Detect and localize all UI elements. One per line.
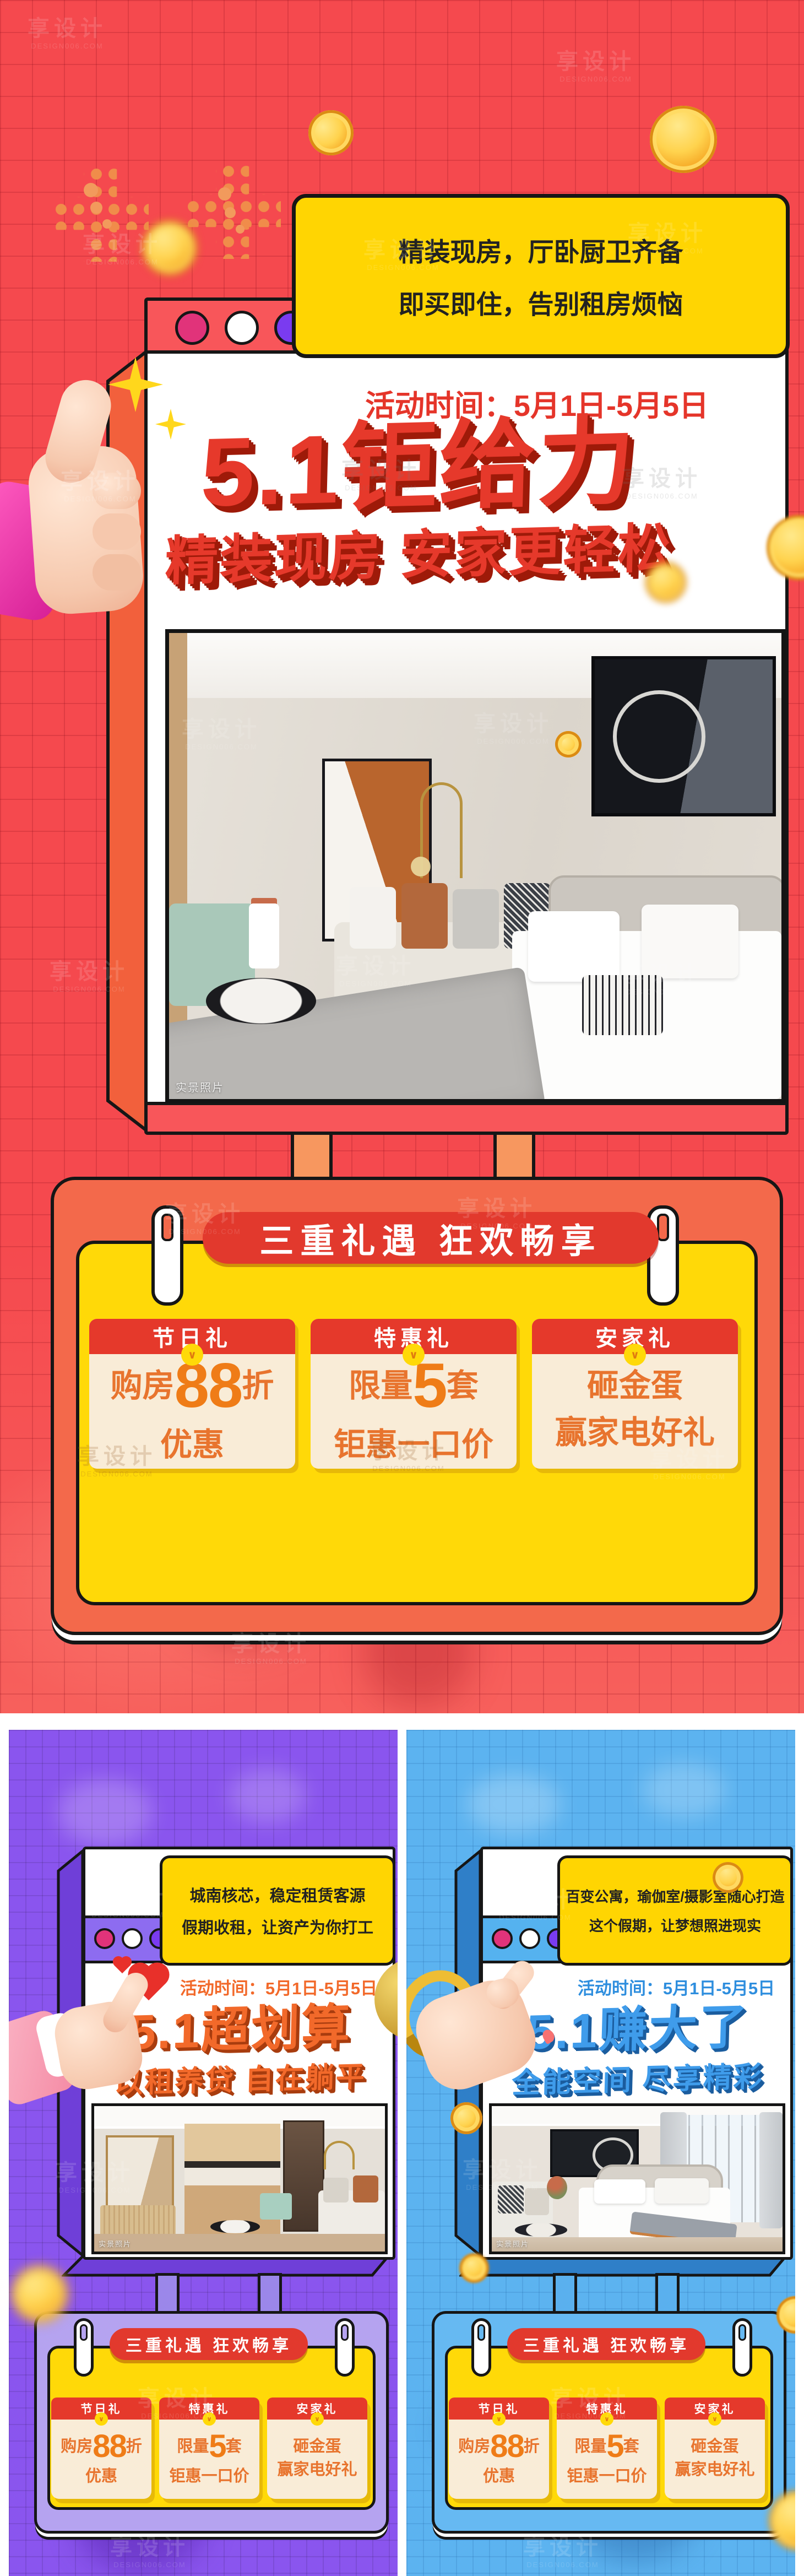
bubble-line-2: 假期收租，让资产为你打工 bbox=[182, 1915, 373, 1938]
ring-hole bbox=[738, 2324, 746, 2341]
speech-bubble: 城南核芯，稳定租赁客源 假期收租，让资产为你打工 bbox=[160, 1855, 395, 1966]
chevron-down-icon: ∨ bbox=[708, 2412, 721, 2426]
chevron-down-icon: ∨ bbox=[600, 2412, 613, 2426]
photo-pillow bbox=[323, 2178, 349, 2202]
gift-text: 限量 bbox=[574, 2439, 606, 2455]
bubble-line-1: 精装现房，厅卧厨卫齐备 bbox=[399, 231, 683, 269]
photo-sofa bbox=[318, 2190, 385, 2240]
window-dot-pink bbox=[175, 311, 209, 345]
poster-purple: 城南核芯，稳定租赁客源 假期收租，让资产为你打工 活动时间：5月1日-5月5日 … bbox=[9, 1730, 398, 2576]
chevron-down-icon: ∨ bbox=[95, 2412, 108, 2426]
hand-fingers bbox=[93, 473, 141, 509]
bubble-line-2: 即买即住，告别租房烦恼 bbox=[399, 283, 683, 321]
event-time: 活动时间：5月1日-5月5日 bbox=[572, 1974, 781, 1999]
photo-flowers bbox=[547, 2176, 567, 2199]
window-footer bbox=[148, 1102, 785, 1132]
gold-coin-blurred bbox=[142, 220, 197, 275]
dot-decoration bbox=[102, 219, 112, 229]
bubble-line-1: 城南核芯，稳定租赁客源 bbox=[189, 1883, 365, 1906]
gift-text: 优惠 bbox=[160, 1419, 224, 1465]
photo-coffee-table bbox=[210, 2220, 260, 2233]
gift-text: 钜惠一口价 bbox=[567, 2463, 647, 2486]
gift-card-home: 安家礼 ∨ 砸金蛋 赢家电好礼 bbox=[532, 1319, 738, 1469]
light-blob bbox=[643, 1763, 726, 1818]
gift-card-special: 特惠礼 ∨ 限量5套 钜惠一口价 bbox=[159, 2398, 259, 2499]
ring-hole bbox=[80, 2324, 88, 2341]
gift-text: 赢家电好礼 bbox=[277, 2456, 357, 2480]
light-blob bbox=[229, 1768, 306, 1823]
dot-decoration bbox=[236, 225, 245, 234]
binder-ring bbox=[335, 2318, 355, 2377]
apartment-photo: 实景照片 bbox=[91, 2103, 388, 2254]
offers-calendar: 三重礼遇 狂欢畅享 节日礼 ∨ 购房88折 优惠 特惠礼 ∨ 限量5套 钜惠一口… bbox=[34, 2311, 389, 2534]
photo-lamp-arc bbox=[324, 2141, 355, 2169]
dot-arrow-pattern bbox=[52, 165, 149, 262]
gift-text: 钜惠一口价 bbox=[334, 1419, 493, 1465]
ring-hole bbox=[161, 1214, 173, 1241]
gift-number: 5 bbox=[606, 2432, 623, 2461]
dot-decoration bbox=[218, 187, 231, 201]
gift-text: 优惠 bbox=[85, 2463, 117, 2486]
gold-coin bbox=[644, 100, 724, 180]
photo-line-art-pillow bbox=[582, 975, 663, 1036]
dot-decoration bbox=[90, 202, 102, 214]
poster-main: 活动时间：5月1日-5月5日 5.1钜给力 精装现房 安家更轻松 bbox=[0, 0, 804, 1713]
gift-number: 88 bbox=[490, 2432, 524, 2461]
window-dot-pink bbox=[492, 1928, 513, 1949]
gold-coin-blurred bbox=[645, 562, 686, 603]
gift-text: 赢家电好礼 bbox=[555, 1406, 715, 1453]
gift-text: 限量 bbox=[349, 1370, 412, 1402]
binder-ring bbox=[151, 1205, 183, 1306]
poster-collection: 活动时间：5月1日-5月5日 5.1钜给力 精装现房 安家更轻松 bbox=[0, 0, 804, 2576]
dot-decoration bbox=[84, 183, 98, 197]
photo-pillow bbox=[453, 889, 499, 949]
photo-pillow bbox=[401, 883, 448, 949]
gift-card-festival: 节日礼 ∨ 购房88折 优惠 bbox=[89, 1319, 295, 1469]
apartment-photo: 实景照片 bbox=[165, 629, 785, 1103]
binder-ring bbox=[471, 2318, 491, 2377]
gift-card-home: 安家礼 ∨ 砸金蛋 赢家电好礼 bbox=[267, 2398, 367, 2499]
gift-text: 折 bbox=[242, 1370, 274, 1402]
offers-calendar: 三重礼遇 狂欢畅享 节日礼 ∨ 购房88折 优惠 特惠礼 ∨ 限量5套 钜惠一口… bbox=[51, 1177, 783, 1635]
photo-pillow bbox=[350, 887, 396, 949]
photo-pillow bbox=[642, 905, 738, 978]
apartment-photo: 实景照片 bbox=[489, 2103, 785, 2254]
gift-card-festival: 节日礼 ∨ 购房88折 优惠 bbox=[449, 2398, 549, 2499]
poster-subtitle: 全能空间 尽享精彩 bbox=[483, 2062, 792, 2099]
gift-text: 赢家电好礼 bbox=[675, 2456, 754, 2480]
offers-calendar: 三重礼遇 狂欢畅享 节日礼 ∨ 购房88折 优惠 特惠礼 ∨ 限量5套 钜惠一口… bbox=[432, 2311, 786, 2534]
speech-bubble: 精装现房，厅卧厨卫齐备 即买即住，告别租房烦恼 bbox=[292, 194, 790, 358]
gold-coin-blurred bbox=[11, 2265, 68, 2323]
gift-text: 优惠 bbox=[483, 2463, 515, 2486]
window-dot-pink bbox=[94, 1928, 115, 1949]
photo-ring-light bbox=[613, 690, 706, 783]
photo-chair bbox=[260, 2193, 292, 2220]
photo-curtain bbox=[759, 2112, 783, 2228]
gift-text: 套 bbox=[623, 2439, 639, 2455]
calendar-title-pill: 三重礼遇 狂欢畅享 bbox=[203, 1212, 659, 1264]
bubble-line-1: 百变公寓，瑜伽室/摄影室随心打造 bbox=[566, 1886, 784, 1906]
gift-text: 购房 bbox=[111, 1370, 175, 1402]
gift-text: 限量 bbox=[177, 2439, 209, 2455]
gift-number: 88 bbox=[175, 1358, 242, 1415]
gift-number: 5 bbox=[209, 2432, 225, 2461]
gift-card-home: 安家礼 ∨ 砸金蛋 赢家电好礼 bbox=[665, 2398, 765, 2499]
poster-blue: 百变公寓，瑜伽室/摄影室随心打造 这个假期，让梦想照进现实 活动时间：5月1日-… bbox=[406, 1730, 795, 2576]
calendar-title-pill: 三重礼遇 狂欢畅享 bbox=[110, 2328, 308, 2360]
chevron-down-icon: ∨ bbox=[624, 1344, 646, 1366]
gift-text: 钜惠一口价 bbox=[169, 2463, 249, 2486]
chevron-down-icon: ∨ bbox=[492, 2412, 506, 2426]
gift-text: 套 bbox=[447, 1370, 479, 1402]
photo-vase bbox=[249, 903, 280, 968]
photo-pillow bbox=[353, 2175, 378, 2202]
gift-text: 购房 bbox=[458, 2439, 490, 2455]
photo-watermark-tag: 实景照片 bbox=[496, 2238, 529, 2249]
ring-hole bbox=[657, 1214, 669, 1241]
photo-coffee-table bbox=[515, 2223, 567, 2237]
chevron-down-icon: ∨ bbox=[311, 2412, 324, 2426]
photo-floor bbox=[94, 2234, 385, 2252]
window-dot-white bbox=[519, 1928, 540, 1949]
photo-pillow bbox=[594, 2179, 645, 2204]
chevron-down-icon: ∨ bbox=[181, 1344, 203, 1366]
gift-number: 88 bbox=[93, 2432, 126, 2461]
gift-card-festival: 节日礼 ∨ 购房88折 优惠 bbox=[51, 2398, 151, 2499]
gold-coin bbox=[302, 104, 360, 161]
gift-text: 折 bbox=[126, 2439, 142, 2455]
ring-hole bbox=[477, 2324, 485, 2341]
gift-text: 购房 bbox=[61, 2439, 93, 2455]
ring-hole bbox=[341, 2324, 349, 2341]
photo-watermark-tag: 实景照片 bbox=[176, 1079, 224, 1095]
photo-watermark-tag: 实景照片 bbox=[99, 2238, 132, 2249]
gift-card-special: 特惠礼 ∨ 限量5套 钜惠一口价 bbox=[557, 2398, 657, 2499]
bubble-line-2: 这个假期，让梦想照进现实 bbox=[589, 1915, 761, 1935]
gift-text: 折 bbox=[524, 2439, 540, 2455]
gift-text: 砸金蛋 bbox=[691, 2439, 738, 2455]
gift-card-special: 特惠礼 ∨ 限量5套 钜惠一口价 bbox=[311, 1319, 517, 1469]
photo-pillow bbox=[655, 2178, 709, 2204]
chevron-down-icon: ∨ bbox=[403, 1344, 425, 1366]
binder-ring bbox=[732, 2318, 752, 2377]
photo-tv bbox=[591, 656, 775, 816]
photo-floor bbox=[492, 2237, 783, 2252]
light-blob bbox=[467, 1774, 561, 1834]
gift-text: 套 bbox=[226, 2439, 242, 2455]
calendar-title-pill: 三重礼遇 狂欢畅享 bbox=[507, 2328, 705, 2360]
gift-number: 5 bbox=[412, 1358, 446, 1415]
photo-pillow bbox=[525, 2188, 549, 2215]
photo-bed bbox=[512, 931, 781, 1099]
binder-ring bbox=[74, 2318, 94, 2377]
photo-pillow bbox=[528, 911, 620, 982]
photo-pillow bbox=[498, 2185, 524, 2214]
window-dot-white bbox=[225, 311, 259, 345]
chevron-down-icon: ∨ bbox=[203, 2412, 216, 2426]
gift-text: 砸金蛋 bbox=[587, 1370, 683, 1402]
dot-decoration bbox=[225, 207, 236, 218]
window-dot-white bbox=[122, 1928, 143, 1949]
gold-coin-blurred bbox=[459, 2253, 489, 2283]
gift-text: 砸金蛋 bbox=[293, 2439, 341, 2455]
photo-coffee-table bbox=[206, 978, 316, 1024]
light-blob bbox=[58, 1779, 152, 1846]
event-time: 活动时间：5月1日-5月5日 bbox=[174, 1974, 383, 1999]
speech-bubble: 百变公寓，瑜伽室/摄影室随心打造 这个假期，让梦想照进现实 bbox=[557, 1855, 793, 1966]
